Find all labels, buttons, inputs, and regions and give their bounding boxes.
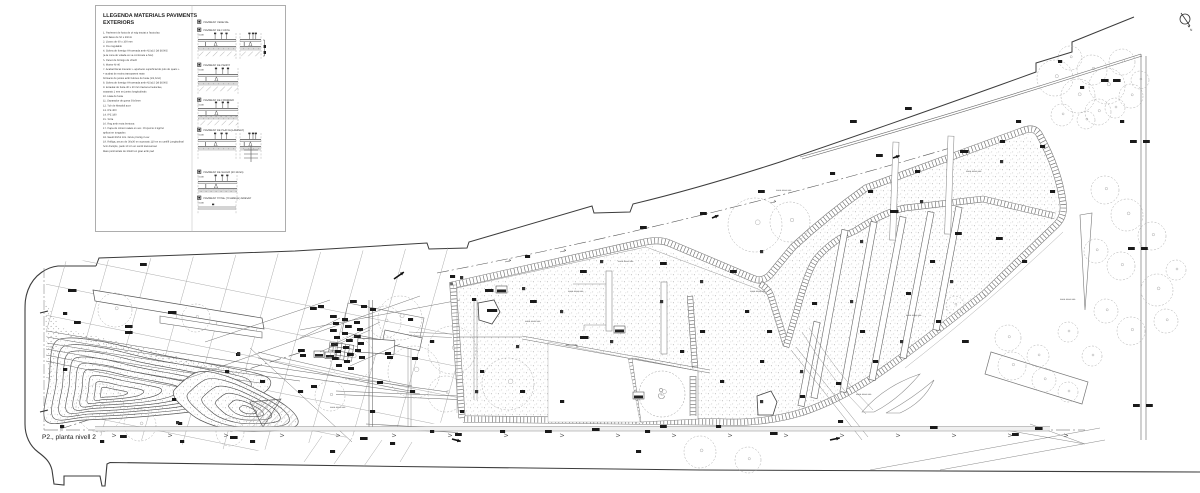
svg-text:± 0.00: ± 0.00: [198, 104, 205, 107]
svg-text:8. Solera de formigo HA armada: 8. Solera de formigo HA armada amb #15x1…: [103, 82, 168, 85]
svg-text:PAVIMENT DE PLATJA (LAMINAT): PAVIMENT DE PLATJA (LAMINAT): [204, 129, 245, 132]
svg-text:15. Terra: 15. Terra: [103, 118, 114, 121]
svg-text:12. Tub de Metafoil acer: 12. Tub de Metafoil acer: [103, 104, 131, 107]
svg-text:19. Relliga, peces de 30x30 en: 19. Relliga, peces de 30x30 en suposats …: [103, 141, 184, 144]
svg-text:aaaa aaaa aaa: aaaa aaaa aaa: [525, 320, 541, 323]
svg-text:LLEGENDA MATERIALS PAVIMENTS: LLEGENDA MATERIALS PAVIMENTS: [103, 13, 198, 19]
svg-text:PAVIMENT TOTAL (70 AMB AL) GRE: PAVIMENT TOTAL (70 AMB AL) GREVAT: [204, 197, 252, 200]
svg-text:13. IPE 300: 13. IPE 300: [103, 109, 117, 112]
svg-text:separats 1 mm en juntes longit: separats 1 mm en juntes longitudinals: [103, 91, 147, 94]
svg-text:aaaa aaaa aaa: aaaa aaaa aaa: [906, 314, 922, 317]
svg-text:aaaa aaaa aaa: aaaa aaaa aaa: [856, 393, 872, 396]
svg-text:± 0.00: ± 0.00: [198, 176, 205, 179]
svg-text:PAVIMENT VEGETAL: PAVIMENT VEGETAL: [204, 21, 230, 24]
svg-text:4. Solera de formigo HA armada: 4. Solera de formigo HA armada amb #15x1…: [103, 50, 168, 53]
svg-text:aaaa aaaa aaa: aaaa aaaa aaa: [966, 170, 982, 173]
svg-text:aaaa aaaa aaa: aaaa aaaa aaa: [1060, 298, 1076, 301]
svg-text:5. Panot de formigo de 20x20: 5. Panot de formigo de 20x20: [103, 59, 138, 62]
svg-text:formacio de juntes amb fulones: formacio de juntes amb fulones de fusta …: [103, 77, 161, 80]
svg-text:aaaa aaaa aaa: aaaa aaaa aaa: [776, 189, 792, 192]
svg-text:PAVIMENT DE FORMIGO: PAVIMENT DE FORMIGO: [204, 99, 234, 102]
svg-text:3. Peu regulable: 3. Peu regulable: [103, 45, 122, 48]
svg-text:± 0.00: ± 0.00: [198, 34, 205, 37]
svg-text:amb llates de 50 x 30mm: amb llates de 50 x 30mm: [103, 36, 132, 39]
svg-text:+ acabat de resina transparent: + acabat de resina transparent mate: [103, 72, 145, 75]
svg-text:± 0.00: ± 0.00: [198, 202, 205, 205]
svg-text:17. Capa de ciment calats en s: 17. Capa de ciment calats en sec. Propor…: [103, 127, 164, 130]
svg-text:14. IPE 180: 14. IPE 180: [103, 113, 117, 116]
svg-text:± 0.00: ± 0.00: [198, 69, 205, 72]
svg-text:7. Acabat lliscat mecanic + ap: 7. Acabat lliscat mecanic + aportacio su…: [103, 68, 180, 71]
svg-text:Mats perimetrals de 30x30 en g: Mats perimetrals de 30x30 en gran amb pa…: [103, 150, 154, 153]
svg-text:10. Llata de fusta: 10. Llata de fusta: [103, 95, 123, 98]
svg-text:1. Paviment de fusta de pi roi: 1. Paviment de fusta de pi roig tractat …: [103, 32, 160, 35]
svg-text:aaaa aaaa aaa: aaaa aaaa aaa: [568, 290, 584, 293]
svg-text:PAVIMENT DE SAULO (60 15mm): PAVIMENT DE SAULO (60 15mm): [204, 171, 244, 174]
svg-text:aaaa aaaa aaa: aaaa aaaa aaa: [618, 260, 634, 263]
svg-text:P2., planta nivell 2: P2., planta nivell 2: [42, 434, 96, 441]
svg-text:5cm d'ample, pads 10 cm en sen: 5cm d'ample, pads 10 cm en sentit transv…: [103, 145, 157, 148]
svg-text:PAVIMENT DE FUSTA: PAVIMENT DE FUSTA: [204, 29, 230, 32]
svg-text:16. Reg amb mota bentosa: 16. Reg amb mota bentosa: [103, 123, 135, 126]
svg-text:2. Lloses de 60 x 100 mm: 2. Lloses de 60 x 100 mm: [103, 41, 133, 44]
svg-text:aplicat en tongades: aplicat en tongades: [103, 132, 126, 135]
svg-text:18. Sauló 80/12 mm. Gruix prom: 18. Sauló 80/12 mm. Gruix promig m.sw: [103, 136, 149, 139]
svg-text:11. Separador de goma 50x5mm: 11. Separador de goma 50x5mm: [103, 100, 141, 103]
svg-text:aaaa aaaa aaa: aaaa aaaa aaa: [750, 290, 766, 293]
svg-text:± 0.00: ± 0.00: [198, 134, 205, 137]
svg-text:PAVIMENT DE PANOT: PAVIMENT DE PANOT: [204, 64, 231, 67]
svg-text:aaaa aaaa aaa: aaaa aaaa aaa: [330, 406, 346, 409]
svg-text:9. Entaulat de fusta 30 x 30 m: 9. Entaulat de fusta 30 x 30 mm tractat …: [103, 86, 162, 89]
svg-text:6. Morter M-40: 6. Morter M-40: [103, 63, 121, 66]
svg-text:EXTERIORS: EXTERIORS: [103, 20, 135, 26]
svg-text:(a la zona de volada es va col: (a la zona de volada es va col.locara a …: [103, 54, 153, 57]
